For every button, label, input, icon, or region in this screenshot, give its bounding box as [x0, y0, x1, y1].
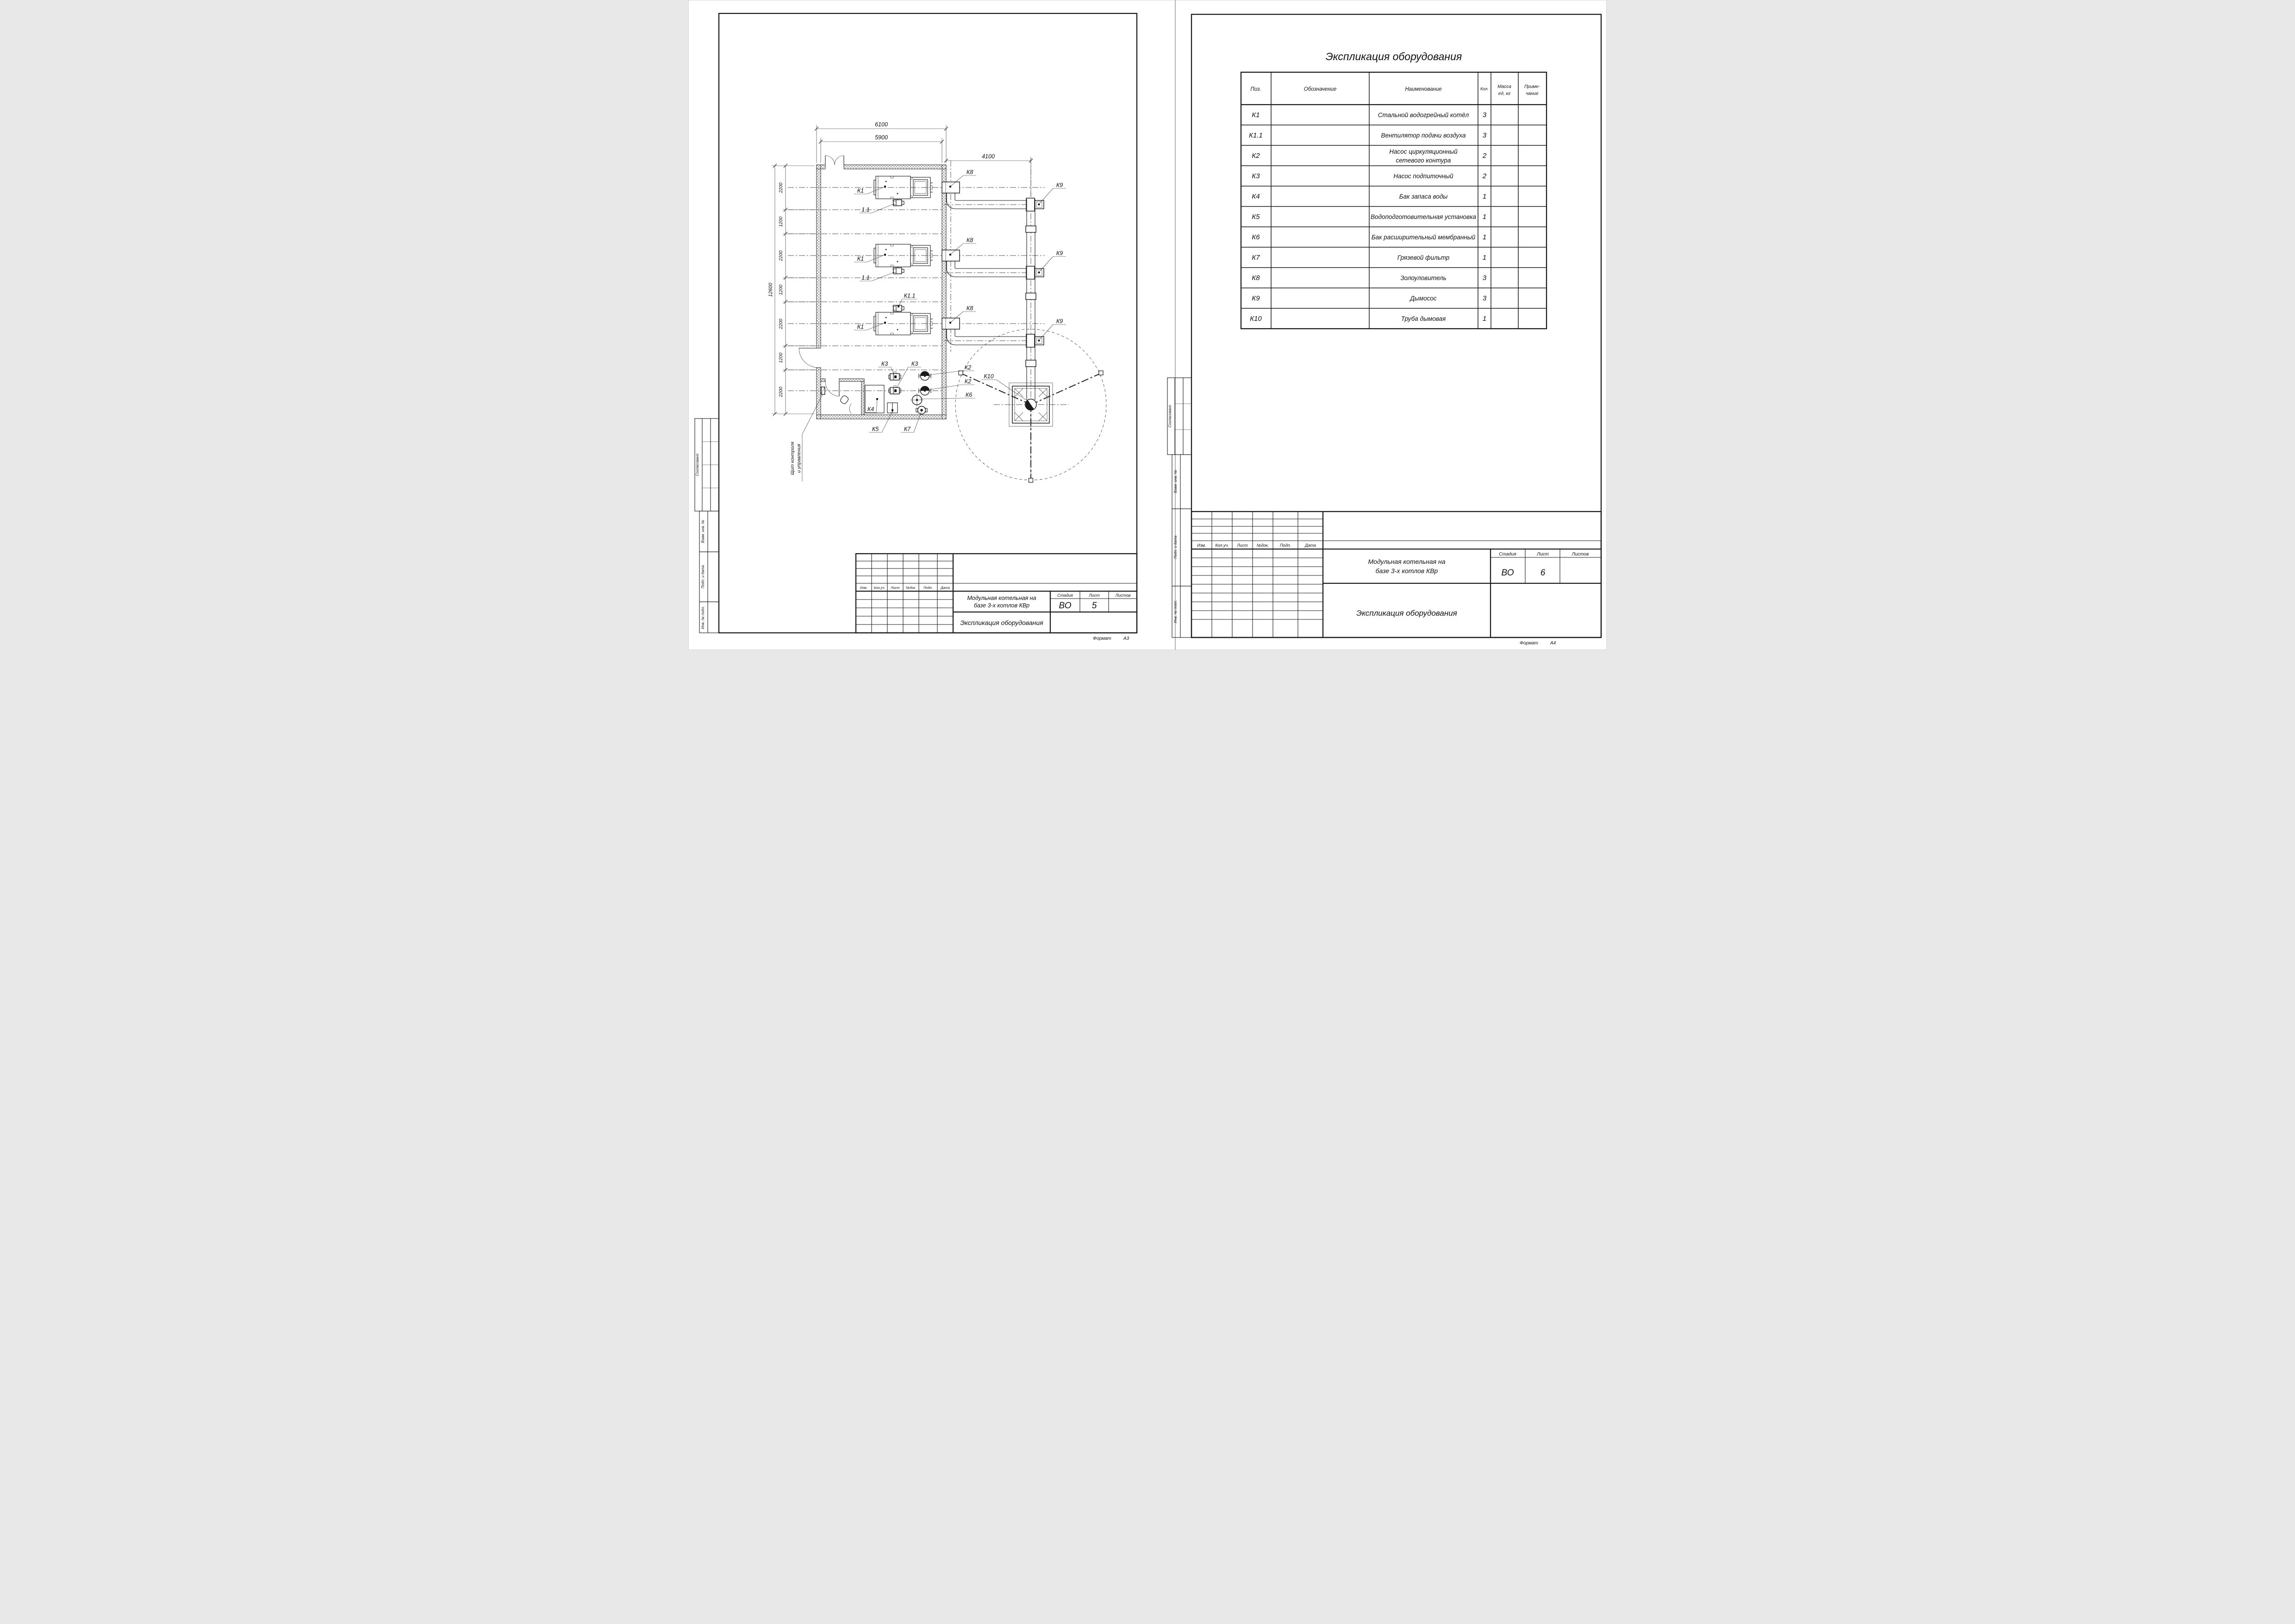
svg-text:К1.1: К1.1	[1249, 131, 1263, 139]
dim-seg: 1200	[779, 216, 784, 227]
paper	[688, 0, 1607, 650]
svg-text:К9: К9	[1252, 294, 1260, 302]
svg-text:2: 2	[1482, 152, 1487, 160]
svg-text:1: 1	[1483, 233, 1486, 241]
svg-text:сетевого контура: сетевого контура	[1396, 157, 1451, 164]
svg-text:К7: К7	[1252, 254, 1260, 262]
svg-text:К5: К5	[1252, 213, 1260, 221]
rev-header: Подп.	[923, 586, 933, 590]
dim-seg: 2200	[779, 387, 784, 398]
col-qty: Кол.	[1480, 87, 1489, 91]
stage-label: Стадия	[1057, 593, 1073, 598]
format-label: Формат	[1093, 636, 1111, 641]
col-pos: Поз.	[1250, 87, 1261, 92]
label-K9: К9	[1056, 318, 1063, 325]
svg-text:К6: К6	[1252, 233, 1260, 241]
stage-value: ВО	[1501, 568, 1514, 578]
label-K3: К3	[881, 361, 888, 367]
stamp-agreed: Согласовано	[695, 453, 699, 476]
dim-seg: 1200	[779, 352, 784, 363]
svg-text:Насос подпиточный: Насос подпиточный	[1393, 173, 1453, 180]
col-note-1: Приме-	[1524, 84, 1540, 89]
format-value: А3	[1123, 636, 1129, 641]
note-line1: Щит контроля	[790, 441, 795, 475]
drawing-scan: Согласовано Взам. инв. № Подп. и дата Ин…	[688, 0, 1607, 650]
project-title-1: Модульная котельная на	[1368, 558, 1446, 565]
svg-text:Золоуловитель: Золоуловитель	[1400, 275, 1446, 281]
label-K1.1: К1.1	[904, 293, 916, 299]
svg-text:2: 2	[1482, 172, 1487, 180]
svg-text:3: 3	[1483, 294, 1487, 302]
svg-text:Дымосос: Дымосос	[1409, 295, 1436, 302]
project-title-1: Модульная котельная на	[967, 595, 1036, 601]
dim-6100: 6100	[875, 121, 888, 128]
stamp-agreed: Согласовано	[1168, 405, 1172, 427]
svg-text:К4: К4	[1252, 193, 1260, 200]
label-1.1: 1.1	[861, 206, 869, 213]
dim-4100: 4100	[982, 153, 995, 160]
label-K2: К2	[965, 378, 971, 385]
note-line2: и управления	[797, 443, 802, 473]
dim-seg: 2200	[779, 182, 784, 194]
col-note-2: чание	[1526, 91, 1539, 96]
stamp-podp: Подп. и дата	[701, 565, 705, 588]
svg-text:1: 1	[1483, 254, 1486, 262]
label-K1: К1	[857, 324, 864, 330]
stamp-vzam: Взам. инв. №	[701, 520, 705, 543]
rev-header: Изм.	[860, 586, 867, 590]
doc-title: Экспликация оборудования	[960, 619, 1043, 626]
sheet-label: Лист	[1536, 552, 1549, 557]
col-name: Наименование	[1405, 87, 1441, 92]
label-K1: К1	[857, 256, 864, 262]
label-K6: К6	[966, 392, 972, 398]
sheet-number: 6	[1540, 568, 1546, 578]
svg-text:Бак запаса воды: Бак запаса воды	[1399, 193, 1448, 200]
col-mass-1: Масса	[1497, 84, 1511, 89]
rev-header: Кол.уч.	[1215, 543, 1229, 548]
table-title: Экспликация оборудования	[1326, 50, 1462, 62]
col-mass-2: ед, кг	[1498, 91, 1510, 96]
project-title-2: базе 3-х котлов КВр	[1376, 567, 1438, 575]
svg-text:3: 3	[1483, 111, 1487, 119]
label-K3: К3	[911, 361, 918, 367]
rev-header: Дата	[940, 586, 950, 590]
label-K8: К8	[967, 237, 973, 244]
svg-text:К10: К10	[1250, 315, 1262, 323]
drawing-svg: Согласовано Взам. инв. № Подп. и дата Ин…	[688, 0, 1607, 650]
rev-header: Подп.	[1280, 543, 1291, 548]
label-1.1: 1.1	[861, 275, 869, 281]
dim-seg: 1200	[779, 284, 784, 295]
rev-header: Дата	[1304, 543, 1316, 548]
col-designation: Обозначение	[1304, 87, 1336, 92]
stamp-inv: Инв. № подл.	[1173, 600, 1178, 623]
svg-text:К2: К2	[1252, 152, 1260, 160]
stamp-inv: Инв. № подл.	[701, 606, 705, 629]
stamp-vzam: Взам. инв. №	[1173, 470, 1178, 493]
doc-title: Экспликация оборудования	[1356, 609, 1457, 618]
label-K2: К2	[965, 364, 971, 371]
label-K7: К7	[904, 426, 911, 432]
svg-text:Насос циркуляционный: Насос циркуляционный	[1389, 148, 1458, 155]
format-value: А4	[1550, 641, 1556, 646]
dim-12600: 12600	[768, 282, 773, 297]
svg-text:К8: К8	[1252, 274, 1260, 282]
sheets-label: Листов	[1572, 552, 1589, 557]
label-K4: К4	[867, 406, 874, 412]
svg-text:3: 3	[1483, 274, 1487, 282]
svg-text:3: 3	[1483, 131, 1487, 139]
label-K8: К8	[967, 305, 973, 312]
label-K9: К9	[1056, 250, 1063, 256]
stamp-podp: Подп. и дата	[1173, 535, 1178, 559]
label-K10: К10	[984, 373, 993, 380]
dim-seg: 2200	[779, 250, 784, 262]
label-K8: К8	[967, 169, 973, 175]
rev-header: Изм.	[1197, 543, 1206, 548]
svg-text:Водоподготовительная установка: Водоподготовительная установка	[1371, 213, 1476, 220]
label-K5: К5	[872, 426, 879, 432]
svg-text:Бак расширительный мембранный: Бак расширительный мембранный	[1372, 234, 1476, 241]
svg-text:Труба дымовая: Труба дымовая	[1401, 315, 1446, 322]
stage-label: Стадия	[1499, 552, 1516, 557]
sheet-number: 5	[1092, 601, 1097, 611]
dim-5900: 5900	[875, 134, 888, 141]
dim-seg: 2200	[779, 319, 784, 330]
svg-text:Грязевой фильтр: Грязевой фильтр	[1397, 254, 1450, 261]
sheets-label: Листов	[1115, 593, 1131, 598]
svg-text:К1: К1	[1252, 111, 1260, 119]
svg-text:Стальной водогрейный котёл: Стальной водогрейный котёл	[1378, 112, 1469, 119]
label-K1: К1	[857, 187, 864, 194]
svg-text:1: 1	[1483, 193, 1486, 200]
svg-text:1: 1	[1483, 213, 1486, 221]
rev-header: Лист	[890, 586, 899, 590]
rev-header: Лист	[1236, 543, 1248, 548]
format-label: Формат	[1520, 641, 1538, 646]
rev-header: №док.	[906, 586, 916, 590]
label-K9: К9	[1056, 182, 1063, 188]
svg-text:К3: К3	[1252, 172, 1260, 180]
rev-header: Кол.уч.	[874, 586, 885, 590]
project-title-2: базе 3-х котлов КВр	[974, 602, 1029, 609]
stage-value: ВО	[1059, 601, 1071, 611]
sheet-label: Лист	[1088, 593, 1100, 598]
svg-text:1: 1	[1483, 315, 1486, 323]
rev-header: №док.	[1257, 543, 1269, 548]
svg-text:Вентилятор подачи воздуха: Вентилятор подачи воздуха	[1381, 132, 1466, 139]
